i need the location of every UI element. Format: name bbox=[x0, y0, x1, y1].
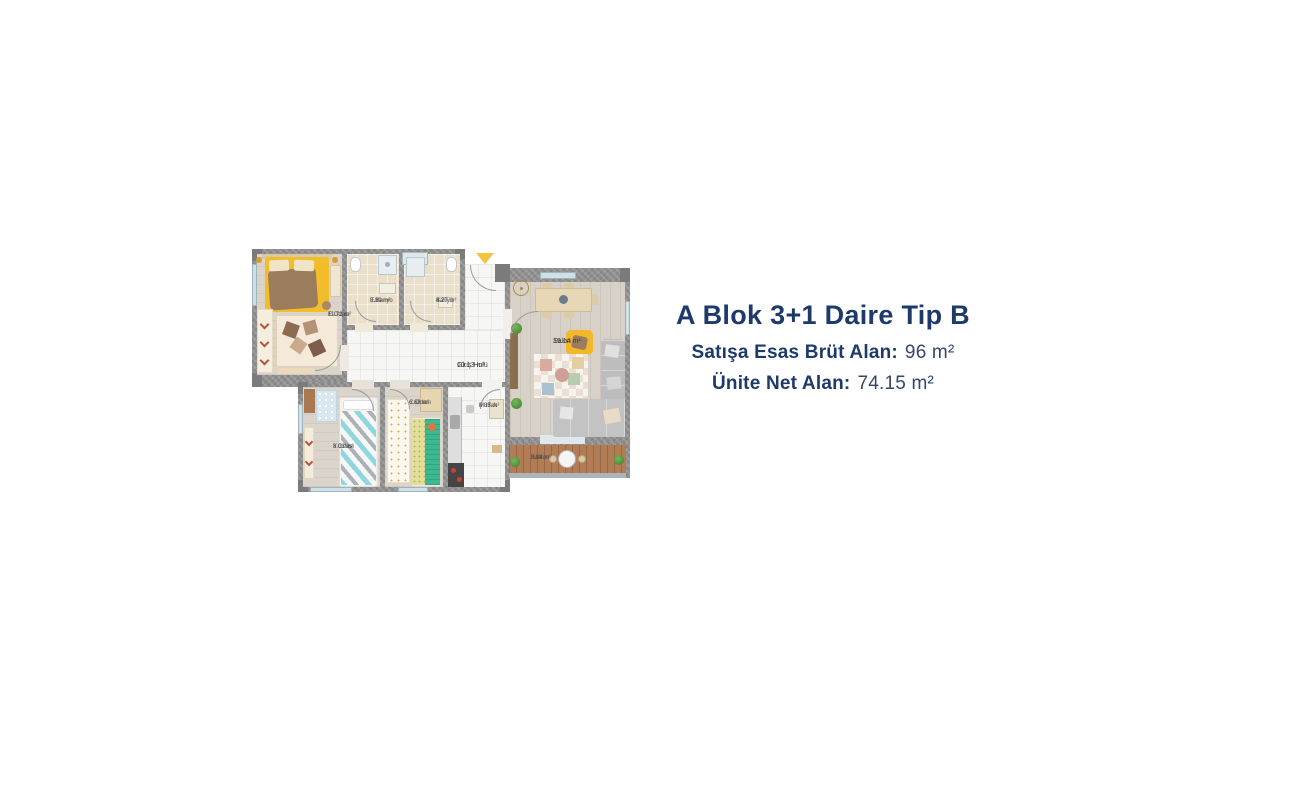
plant-icon bbox=[510, 457, 520, 467]
window bbox=[540, 272, 576, 279]
bistro-table bbox=[558, 450, 576, 468]
door-gap bbox=[390, 380, 410, 389]
stove-burner bbox=[451, 468, 456, 473]
window bbox=[298, 404, 303, 434]
runner-rug bbox=[304, 427, 314, 479]
door-gap bbox=[410, 323, 428, 332]
net-area-label: Ünite Net Alan: bbox=[712, 373, 850, 394]
pillow bbox=[428, 423, 436, 431]
window bbox=[310, 487, 352, 492]
unit-info-panel: A Blok 3+1 Daire Tip B Satışa Esas Brüt … bbox=[620, 300, 1026, 395]
room-area: 8.03 m² bbox=[333, 443, 353, 451]
gross-area-value: 96 m² bbox=[905, 342, 955, 363]
plant-icon bbox=[614, 455, 624, 465]
bench bbox=[278, 368, 314, 374]
door-gap bbox=[352, 380, 374, 389]
net-area-value: 74.15 m² bbox=[857, 373, 934, 394]
room-floor-hall bbox=[347, 330, 505, 382]
room-area: 11.72 m² bbox=[328, 311, 351, 319]
page-canvas: E.Odası 11.72 m² E.Banyo 3.89 m² Banyo 4… bbox=[0, 0, 1290, 800]
stove-burner bbox=[457, 477, 462, 482]
room-area: 6.68 m² bbox=[409, 399, 429, 407]
sink-vanity bbox=[379, 283, 396, 294]
ceiling-fan-hub bbox=[520, 287, 523, 290]
rug-patch bbox=[542, 383, 554, 395]
room-area: 3.89 m² bbox=[370, 297, 390, 305]
round-pouf bbox=[555, 368, 569, 382]
room-area: 3.94 m² bbox=[531, 454, 551, 462]
door-gap bbox=[482, 380, 502, 389]
pouf bbox=[322, 301, 331, 310]
dining-chair bbox=[542, 312, 552, 318]
sofa-pillow bbox=[604, 344, 620, 358]
nightstand-lamp bbox=[256, 257, 262, 263]
rug-patch bbox=[540, 359, 552, 371]
bistro-chair bbox=[578, 455, 586, 463]
sofa-pillow bbox=[560, 406, 574, 419]
kitchen-sink bbox=[450, 415, 460, 429]
balcony-railing bbox=[509, 473, 626, 478]
tv-console bbox=[510, 333, 518, 389]
area-rug bbox=[316, 390, 337, 422]
door-gap bbox=[355, 323, 373, 332]
wall-pillar bbox=[252, 373, 262, 387]
table-centerpiece bbox=[559, 295, 568, 304]
stove bbox=[448, 463, 464, 487]
room-area: 6.35 m² bbox=[479, 402, 499, 410]
unit-title: A Blok 3+1 Daire Tip B bbox=[620, 300, 1026, 330]
pillow bbox=[294, 260, 314, 272]
bed-blanket bbox=[268, 267, 319, 310]
dotted-rug bbox=[387, 399, 410, 483]
shower-drain bbox=[385, 262, 390, 267]
room-area: 4.27 m² bbox=[436, 297, 456, 305]
desk bbox=[304, 389, 315, 413]
room-area: 10.13 m² bbox=[457, 361, 485, 370]
sofa-pillow bbox=[603, 408, 621, 425]
net-area-line: Ünite Net Alan:74.15 m² bbox=[620, 373, 1026, 395]
wall-pillar bbox=[495, 264, 510, 282]
dining-chair bbox=[564, 312, 574, 318]
room-area: 19.14 m² bbox=[553, 337, 581, 346]
gross-area-label: Satışa Esas Brüt Alan: bbox=[691, 342, 897, 363]
bed-blanket bbox=[412, 419, 425, 485]
pillow bbox=[269, 259, 290, 271]
wardrobe bbox=[330, 265, 341, 297]
rug-patch bbox=[568, 373, 580, 385]
entrance-marker-icon bbox=[476, 253, 494, 264]
rug-patch bbox=[572, 357, 584, 369]
toilet bbox=[446, 257, 457, 272]
plant-icon bbox=[511, 398, 522, 409]
door-gap bbox=[340, 345, 349, 371]
wall-pillar bbox=[620, 268, 630, 282]
kitchen-accessory bbox=[466, 405, 474, 413]
gross-area-line: Satışa Esas Brüt Alan:96 m² bbox=[620, 342, 1026, 364]
nightstand-lamp bbox=[332, 257, 338, 263]
dining-chair bbox=[592, 294, 598, 305]
window bbox=[252, 264, 257, 306]
window bbox=[398, 487, 428, 492]
toilet bbox=[350, 257, 361, 272]
shower bbox=[406, 257, 425, 277]
floor-plan: E.Odası 11.72 m² E.Banyo 3.89 m² Banyo 4… bbox=[252, 249, 630, 493]
kitchen-accessory bbox=[492, 445, 502, 453]
